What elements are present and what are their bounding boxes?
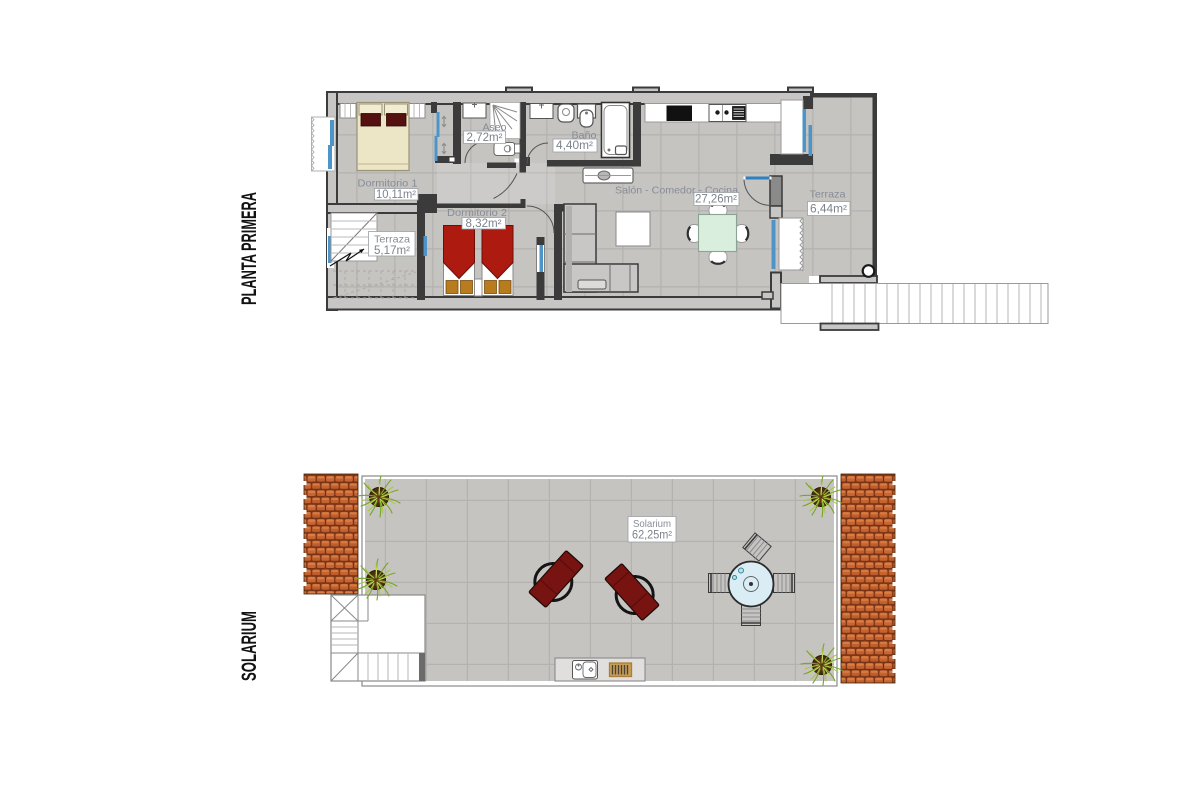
svg-text:Terraza: Terraza — [374, 234, 410, 246]
svg-text:Terraza: Terraza — [810, 189, 846, 201]
svg-text:62,25m²: 62,25m² — [632, 530, 672, 542]
svg-text:8,32m²: 8,32m² — [466, 218, 502, 230]
svg-text:Dormitorio 1: Dormitorio 1 — [358, 178, 418, 190]
svg-text:SOLARIUM: SOLARIUM — [238, 611, 261, 681]
svg-text:6,44m²: 6,44m² — [810, 204, 847, 216]
svg-text:10,11m²: 10,11m² — [376, 189, 416, 201]
svg-text:Solarium: Solarium — [633, 518, 671, 530]
svg-text:PLANTA PRIMERA: PLANTA PRIMERA — [238, 192, 261, 305]
svg-text:27,26m²: 27,26m² — [695, 194, 737, 206]
svg-text:5,17m²: 5,17m² — [374, 245, 410, 257]
svg-text:2,72m²: 2,72m² — [467, 132, 503, 144]
svg-text:4,40m²: 4,40m² — [556, 140, 593, 152]
